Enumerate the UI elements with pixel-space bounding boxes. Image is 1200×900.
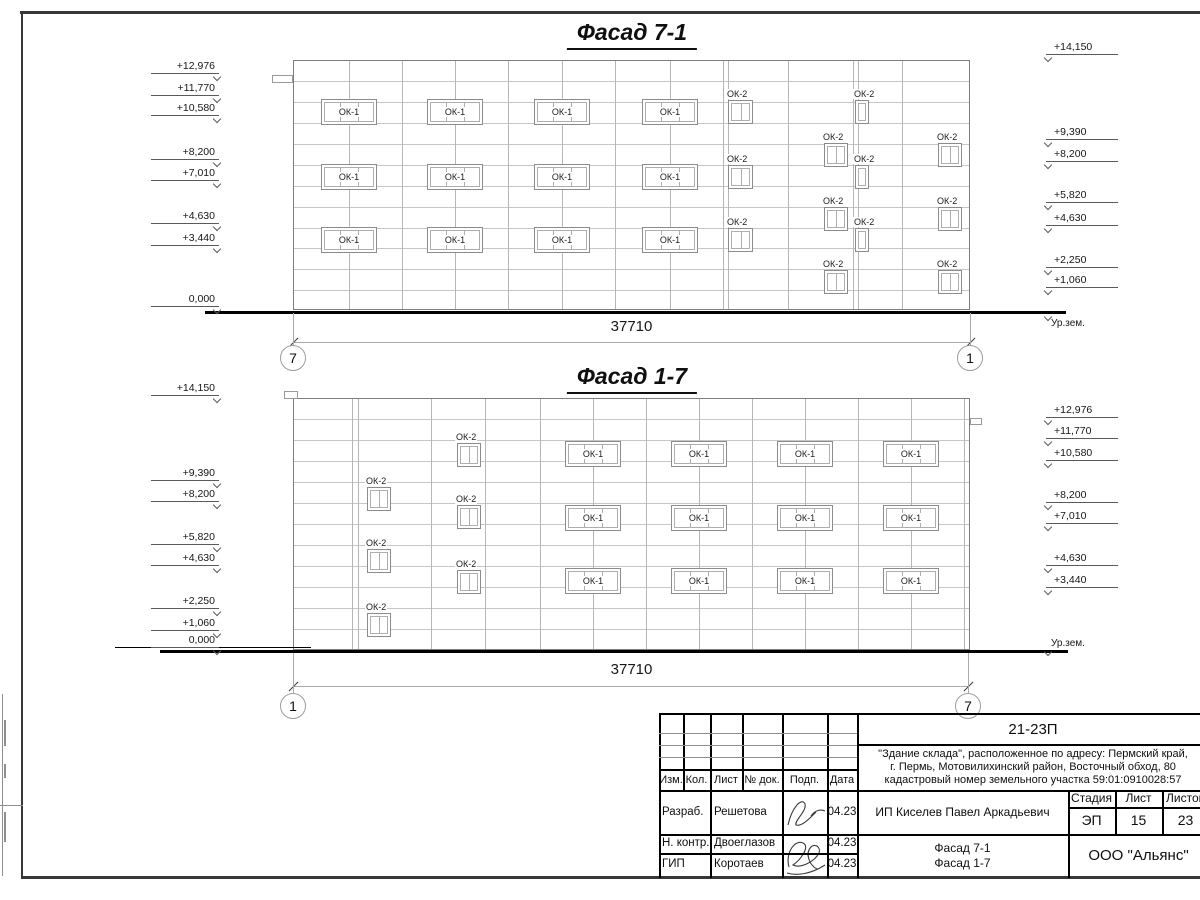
axis-bubble: 1 (957, 345, 983, 371)
tb-line (659, 853, 857, 855)
elevation-mark: +10,580 (151, 102, 219, 116)
window-label: ОК-1 (794, 513, 816, 523)
elevation-tick-icon (1044, 161, 1052, 169)
elevation-tick-icon (1044, 438, 1052, 446)
window-ok2: ОК-2 (728, 100, 753, 124)
elevation-tick-icon (1044, 54, 1052, 62)
drawing-title-line: Фасад 1-7 (857, 856, 1068, 870)
window-ok2: ОК-2 (457, 570, 481, 594)
window-label: ОК-1 (659, 235, 681, 245)
window-ok1: ОК-1 (642, 99, 698, 125)
elevation-mark: +4,630 (151, 552, 219, 566)
elevation-mark: +8,200 (1046, 148, 1118, 162)
window-label: ОК-1 (659, 172, 681, 182)
axis-extension-line (293, 653, 294, 693)
window-label: ОК-2 (726, 154, 748, 164)
facade-title-1-7: Фасад 1-7 (567, 363, 697, 394)
elevation-tick-icon (213, 223, 221, 231)
window-ok1: ОК-1 (671, 568, 727, 594)
window-mullion (741, 104, 742, 120)
elevation-mark: +3,440 (1046, 574, 1118, 588)
elevation-tick-icon (1044, 202, 1052, 210)
tb-line (1068, 807, 1200, 809)
elevation-tick-icon (213, 565, 221, 573)
elevation-mark: +14,150 (1046, 41, 1118, 55)
window-ok1: ОК-1 (777, 568, 833, 594)
window-label: ОК-1 (900, 449, 922, 459)
window-mullion (836, 274, 837, 290)
col-header-kol: Кол. (683, 771, 710, 789)
window-mullion (379, 617, 380, 633)
window-label: ОК-1 (688, 513, 710, 523)
elevation-mark: +4,630 (1046, 212, 1118, 226)
facade-outline (293, 398, 970, 650)
window-label: ОК-1 (688, 576, 710, 586)
elevation-tick-icon (1044, 313, 1052, 321)
parapet-tab (970, 418, 982, 425)
sig-name: Двоеглазов (714, 834, 782, 853)
tb-line (857, 744, 1200, 746)
elevation-mark: +7,010 (151, 167, 219, 181)
axis-extension-line (968, 653, 969, 693)
window-label: ОК-2 (365, 538, 387, 548)
elevation-tick-icon (213, 501, 221, 509)
elevation-mark: +3,440 (151, 232, 219, 246)
ground-line (160, 650, 1068, 653)
tb-line (1115, 790, 1117, 835)
tb-line (659, 745, 857, 746)
window-label: ОК-1 (338, 235, 360, 245)
elevation-tick-icon (213, 608, 221, 616)
window-frame (858, 168, 866, 186)
elevation-mark: +8,200 (151, 146, 219, 160)
sig-name: Коротаев (714, 853, 780, 876)
tb-line (1162, 790, 1164, 835)
window-label: ОК-2 (936, 196, 958, 206)
window-ok1: ОК-1 (642, 227, 698, 253)
window-label: ОК-2 (455, 494, 477, 504)
elevation-tick-icon (213, 159, 221, 167)
client-name: ИП Киселев Павел Аркадьевич (857, 790, 1068, 834)
ground-level-label: Ур.зем. (1051, 318, 1085, 329)
window-ok2: ОК-2 (728, 228, 753, 252)
frame-margin-line (2, 694, 3, 876)
elevation-tick-icon (213, 245, 221, 253)
elevation-tick-icon (213, 480, 221, 488)
window-ok2: ОК-2 (855, 228, 869, 252)
window-ok1: ОК-1 (565, 505, 621, 531)
window-ok1: ОК-1 (642, 164, 698, 190)
elevation-mark: 0,000 (151, 293, 219, 307)
project-address-line: кадастровый номер земельного участка 59:… (859, 774, 1200, 786)
elevation-tick-icon (213, 647, 221, 655)
window-ok1: ОК-1 (565, 441, 621, 467)
window-ok2: ОК-2 (824, 143, 848, 167)
window-mullion (950, 147, 951, 163)
window-label: ОК-2 (853, 217, 875, 227)
frame-left-border (21, 11, 23, 879)
tb-line (659, 834, 1200, 836)
window-ok1: ОК-1 (883, 568, 939, 594)
elevation-mark: +4,630 (151, 210, 219, 224)
sig-date: 04.23 (827, 853, 857, 876)
parapet-tab (284, 391, 298, 399)
elevation-tick-icon (213, 115, 221, 123)
window-frame (858, 231, 866, 249)
tb-line (659, 757, 857, 758)
window-label: ОК-2 (726, 217, 748, 227)
sheet-label: Лист (1115, 790, 1162, 807)
window-ok2: ОК-2 (938, 207, 962, 231)
window-ok2: ОК-2 (728, 165, 753, 189)
window-label: ОК-1 (794, 576, 816, 586)
window-label: ОК-1 (900, 513, 922, 523)
window-ok1: ОК-1 (427, 99, 483, 125)
window-ok2: ОК-2 (938, 143, 962, 167)
elevation-mark: +2,250 (151, 595, 219, 609)
window-label: ОК-2 (726, 89, 748, 99)
elevation-mark: +2,250 (1046, 254, 1118, 268)
tb-line (659, 713, 1200, 715)
sig-role: Н. контр. (662, 834, 712, 853)
window-ok1: ОК-1 (565, 568, 621, 594)
dimension-line (293, 342, 970, 343)
window-ok1: ОК-1 (534, 99, 590, 125)
sig-date: 04.23 (827, 790, 857, 834)
window-ok1: ОК-1 (671, 441, 727, 467)
elevation-tick-icon (1044, 587, 1052, 595)
elevation-mark: +1,060 (1046, 274, 1118, 288)
window-mullion (379, 491, 380, 507)
tb-line (659, 769, 857, 771)
stage-label: Стадия (1068, 790, 1115, 807)
axis-bubble: 7 (280, 345, 306, 371)
window-label: ОК-2 (365, 602, 387, 612)
axis-extension-line (970, 313, 971, 345)
project-code: 21-23П (857, 716, 1200, 743)
window-ok1: ОК-1 (534, 227, 590, 253)
window-mullion (836, 211, 837, 227)
frame-top-border (20, 11, 1200, 14)
window-ok2: ОК-2 (457, 505, 481, 529)
sig-role: Разраб. (662, 790, 708, 834)
elevation-mark: 0,000 (151, 634, 219, 648)
window-label: ОК-2 (936, 132, 958, 142)
elevation-tick-icon (1044, 139, 1052, 147)
project-address-line: г. Пермь, Мотовилихинский район, Восточн… (859, 761, 1200, 773)
organization-name: ООО "Альянс" (1068, 834, 1200, 878)
window-ok2: ОК-2 (855, 100, 869, 124)
axis-bubble: 1 (280, 693, 306, 719)
window-ok1: ОК-1 (777, 505, 833, 531)
window-ok1: ОК-1 (534, 164, 590, 190)
window-ok2: ОК-2 (367, 613, 391, 637)
window-mullion (379, 553, 380, 569)
elevation-tick-icon (213, 544, 221, 552)
window-ok2: ОК-2 (367, 549, 391, 573)
elevation-mark: +8,200 (151, 488, 219, 502)
elevation-tick-icon (1044, 502, 1052, 510)
drawing-title-line: Фасад 7-1 (857, 841, 1068, 855)
tb-line (742, 713, 744, 790)
window-mullion (741, 232, 742, 248)
window-label: ОК-2 (853, 154, 875, 164)
window-label: ОК-2 (365, 476, 387, 486)
elevation-mark: +4,630 (1046, 552, 1118, 566)
window-label: ОК-2 (455, 559, 477, 569)
elevation-mark: +7,010 (1046, 510, 1118, 524)
window-label: ОК-2 (455, 432, 477, 442)
window-ok1: ОК-1 (883, 441, 939, 467)
frame-margin-mark (4, 764, 6, 778)
tb-line (857, 713, 859, 878)
facade-title-7-1: Фасад 7-1 (567, 19, 697, 50)
elevation-mark: +8,200 (1046, 489, 1118, 503)
elevation-mark: +1,060 (151, 617, 219, 631)
elevation-mark: +14,150 (151, 382, 219, 396)
window-ok2: ОК-2 (855, 165, 869, 189)
sheets-total: 23 (1162, 807, 1200, 834)
tb-line (683, 713, 685, 790)
window-label: ОК-1 (582, 513, 604, 523)
elevation-tick-icon (1044, 225, 1052, 233)
elevation-mark: +11,770 (151, 82, 219, 96)
window-label: ОК-1 (582, 449, 604, 459)
elevation-mark: +12,976 (151, 60, 219, 74)
axis-extension-line (293, 313, 294, 345)
frame-margin-divider (0, 805, 23, 806)
sheets-label: Листов (1162, 790, 1200, 807)
window-label: ОК-2 (822, 132, 844, 142)
window-mullion (741, 169, 742, 185)
dimension-text: 37710 (611, 318, 653, 335)
tb-line (659, 733, 857, 734)
elevation-mark: +11,770 (1046, 425, 1118, 439)
window-frame (858, 103, 866, 121)
parapet-tab (272, 75, 293, 83)
window-label: ОК-1 (444, 172, 466, 182)
window-label: ОК-2 (822, 259, 844, 269)
window-ok2: ОК-2 (824, 207, 848, 231)
window-mullion (469, 509, 470, 525)
window-label: ОК-1 (582, 576, 604, 586)
dimension-line (293, 686, 968, 687)
window-ok2: ОК-2 (457, 443, 481, 467)
window-label: ОК-1 (900, 576, 922, 586)
window-label: ОК-1 (444, 235, 466, 245)
col-header-izm: Изм. (659, 771, 683, 789)
elevation-mark: +9,390 (151, 467, 219, 481)
signature-scribble (783, 795, 827, 833)
window-label: ОК-1 (338, 172, 360, 182)
window-label: ОК-1 (551, 235, 573, 245)
window-ok2: ОК-2 (824, 270, 848, 294)
stage-value: ЭП (1068, 807, 1115, 834)
dimension-text: 37710 (611, 661, 653, 678)
elevation-tick-icon (213, 73, 221, 81)
window-ok1: ОК-1 (777, 441, 833, 467)
sig-date: 04.23 (827, 834, 857, 853)
elevation-tick-icon (1044, 565, 1052, 573)
frame-margin-mark (4, 812, 6, 842)
elevation-mark: +12,976 (1046, 404, 1118, 418)
ground-line (205, 311, 1066, 314)
window-ok1: ОК-1 (427, 164, 483, 190)
window-label: ОК-1 (551, 172, 573, 182)
col-header-ndoc: № док. (742, 771, 782, 789)
sheet-number: 15 (1115, 807, 1162, 834)
window-mullion (950, 211, 951, 227)
window-ok2: ОК-2 (367, 487, 391, 511)
window-mullion (469, 574, 470, 590)
elevation-tick-icon (1044, 523, 1052, 531)
window-label: ОК-2 (822, 196, 844, 206)
window-label: ОК-1 (444, 107, 466, 117)
window-ok1: ОК-1 (671, 505, 727, 531)
window-label: ОК-1 (338, 107, 360, 117)
window-label: ОК-1 (551, 107, 573, 117)
window-ok1: ОК-1 (321, 164, 377, 190)
window-label: ОК-1 (659, 107, 681, 117)
signature-scribble (780, 835, 830, 877)
window-label: ОК-1 (794, 449, 816, 459)
elevation-tick-icon (213, 180, 221, 188)
drawing-sheet: { "facades": { "top": { "title": "Фасад … (0, 0, 1200, 900)
window-ok2: ОК-2 (938, 270, 962, 294)
elevation-mark: +5,820 (1046, 189, 1118, 203)
window-mullion (836, 147, 837, 163)
window-ok1: ОК-1 (427, 227, 483, 253)
col-header-list: Лист (710, 771, 742, 789)
window-mullion (950, 274, 951, 290)
sig-role: ГИП (662, 853, 708, 876)
window-label: ОК-2 (853, 89, 875, 99)
project-address-line: "Здание склада", расположенное по адресу… (859, 748, 1200, 760)
col-header-data: Дата (827, 771, 857, 789)
window-ok1: ОК-1 (321, 99, 377, 125)
elevation-tick-icon (1044, 417, 1052, 425)
window-ok1: ОК-1 (321, 227, 377, 253)
elevation-mark: +9,390 (1046, 126, 1118, 140)
elevation-tick-icon (1044, 460, 1052, 468)
ground-level-label: Ур.зем. (1051, 638, 1085, 649)
elevation-tick-icon (1044, 287, 1052, 295)
window-mullion (469, 447, 470, 463)
window-label: ОК-1 (688, 449, 710, 459)
tb-line (659, 790, 1200, 792)
window-label: ОК-2 (936, 259, 958, 269)
frame-bottom-border (21, 876, 1200, 879)
elevation-mark: +10,580 (1046, 447, 1118, 461)
window-ok1: ОК-1 (883, 505, 939, 531)
col-header-podp: Подп. (782, 771, 827, 789)
frame-margin-mark (4, 720, 6, 746)
elevation-mark: +5,820 (151, 531, 219, 545)
sig-name: Решетова (714, 790, 780, 834)
elevation-tick-icon (213, 395, 221, 403)
